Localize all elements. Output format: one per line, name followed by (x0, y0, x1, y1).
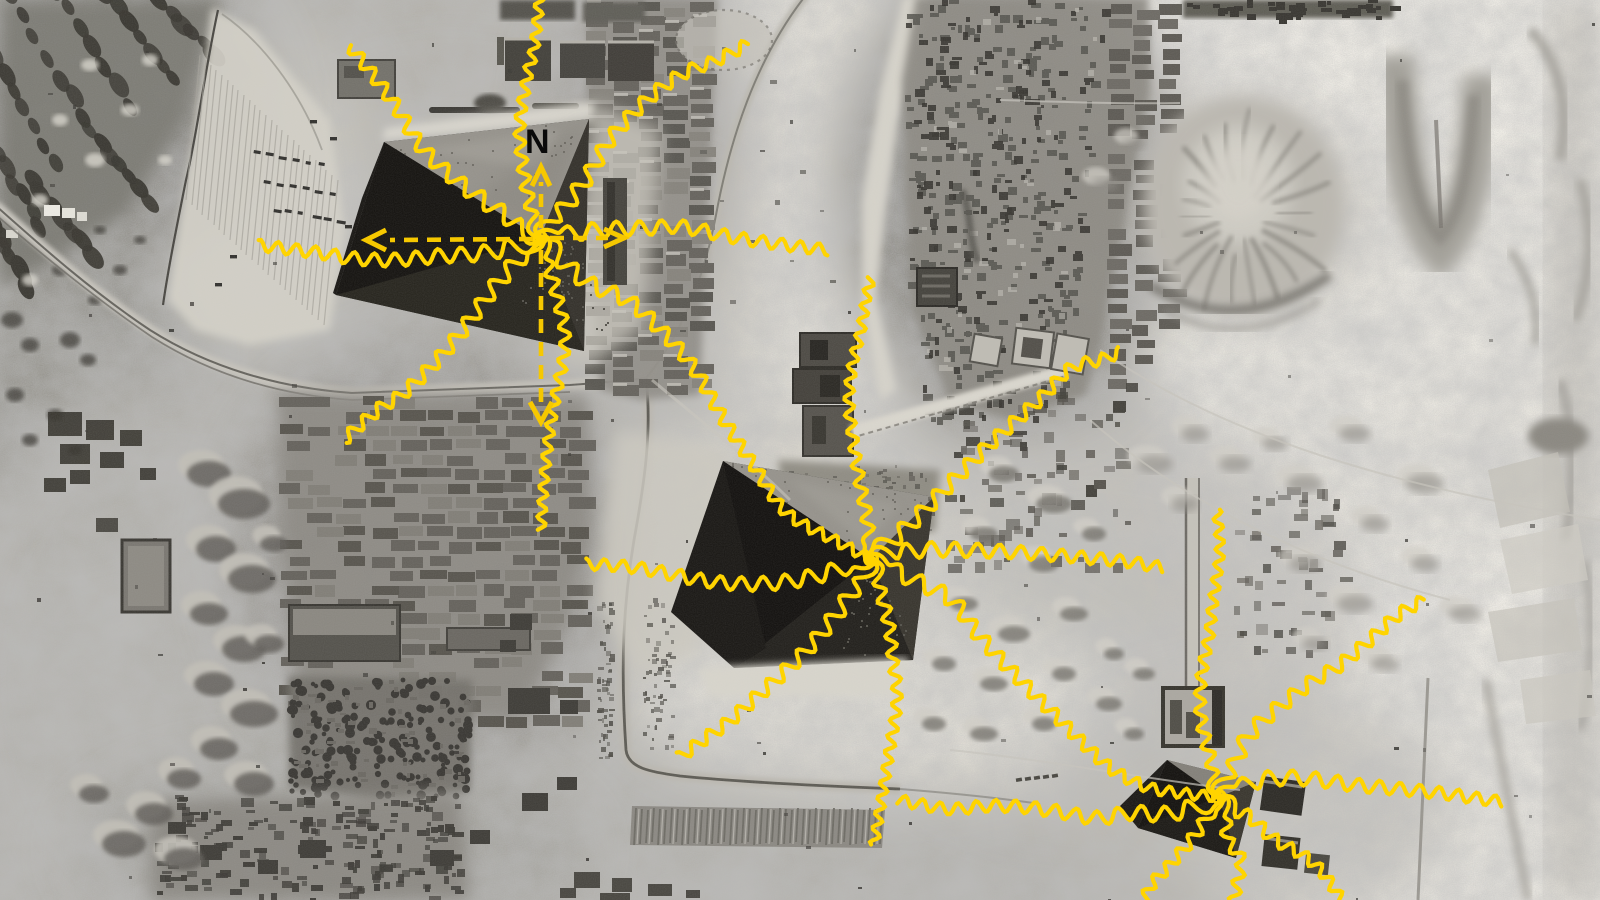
svg-text:N: N (525, 123, 550, 161)
